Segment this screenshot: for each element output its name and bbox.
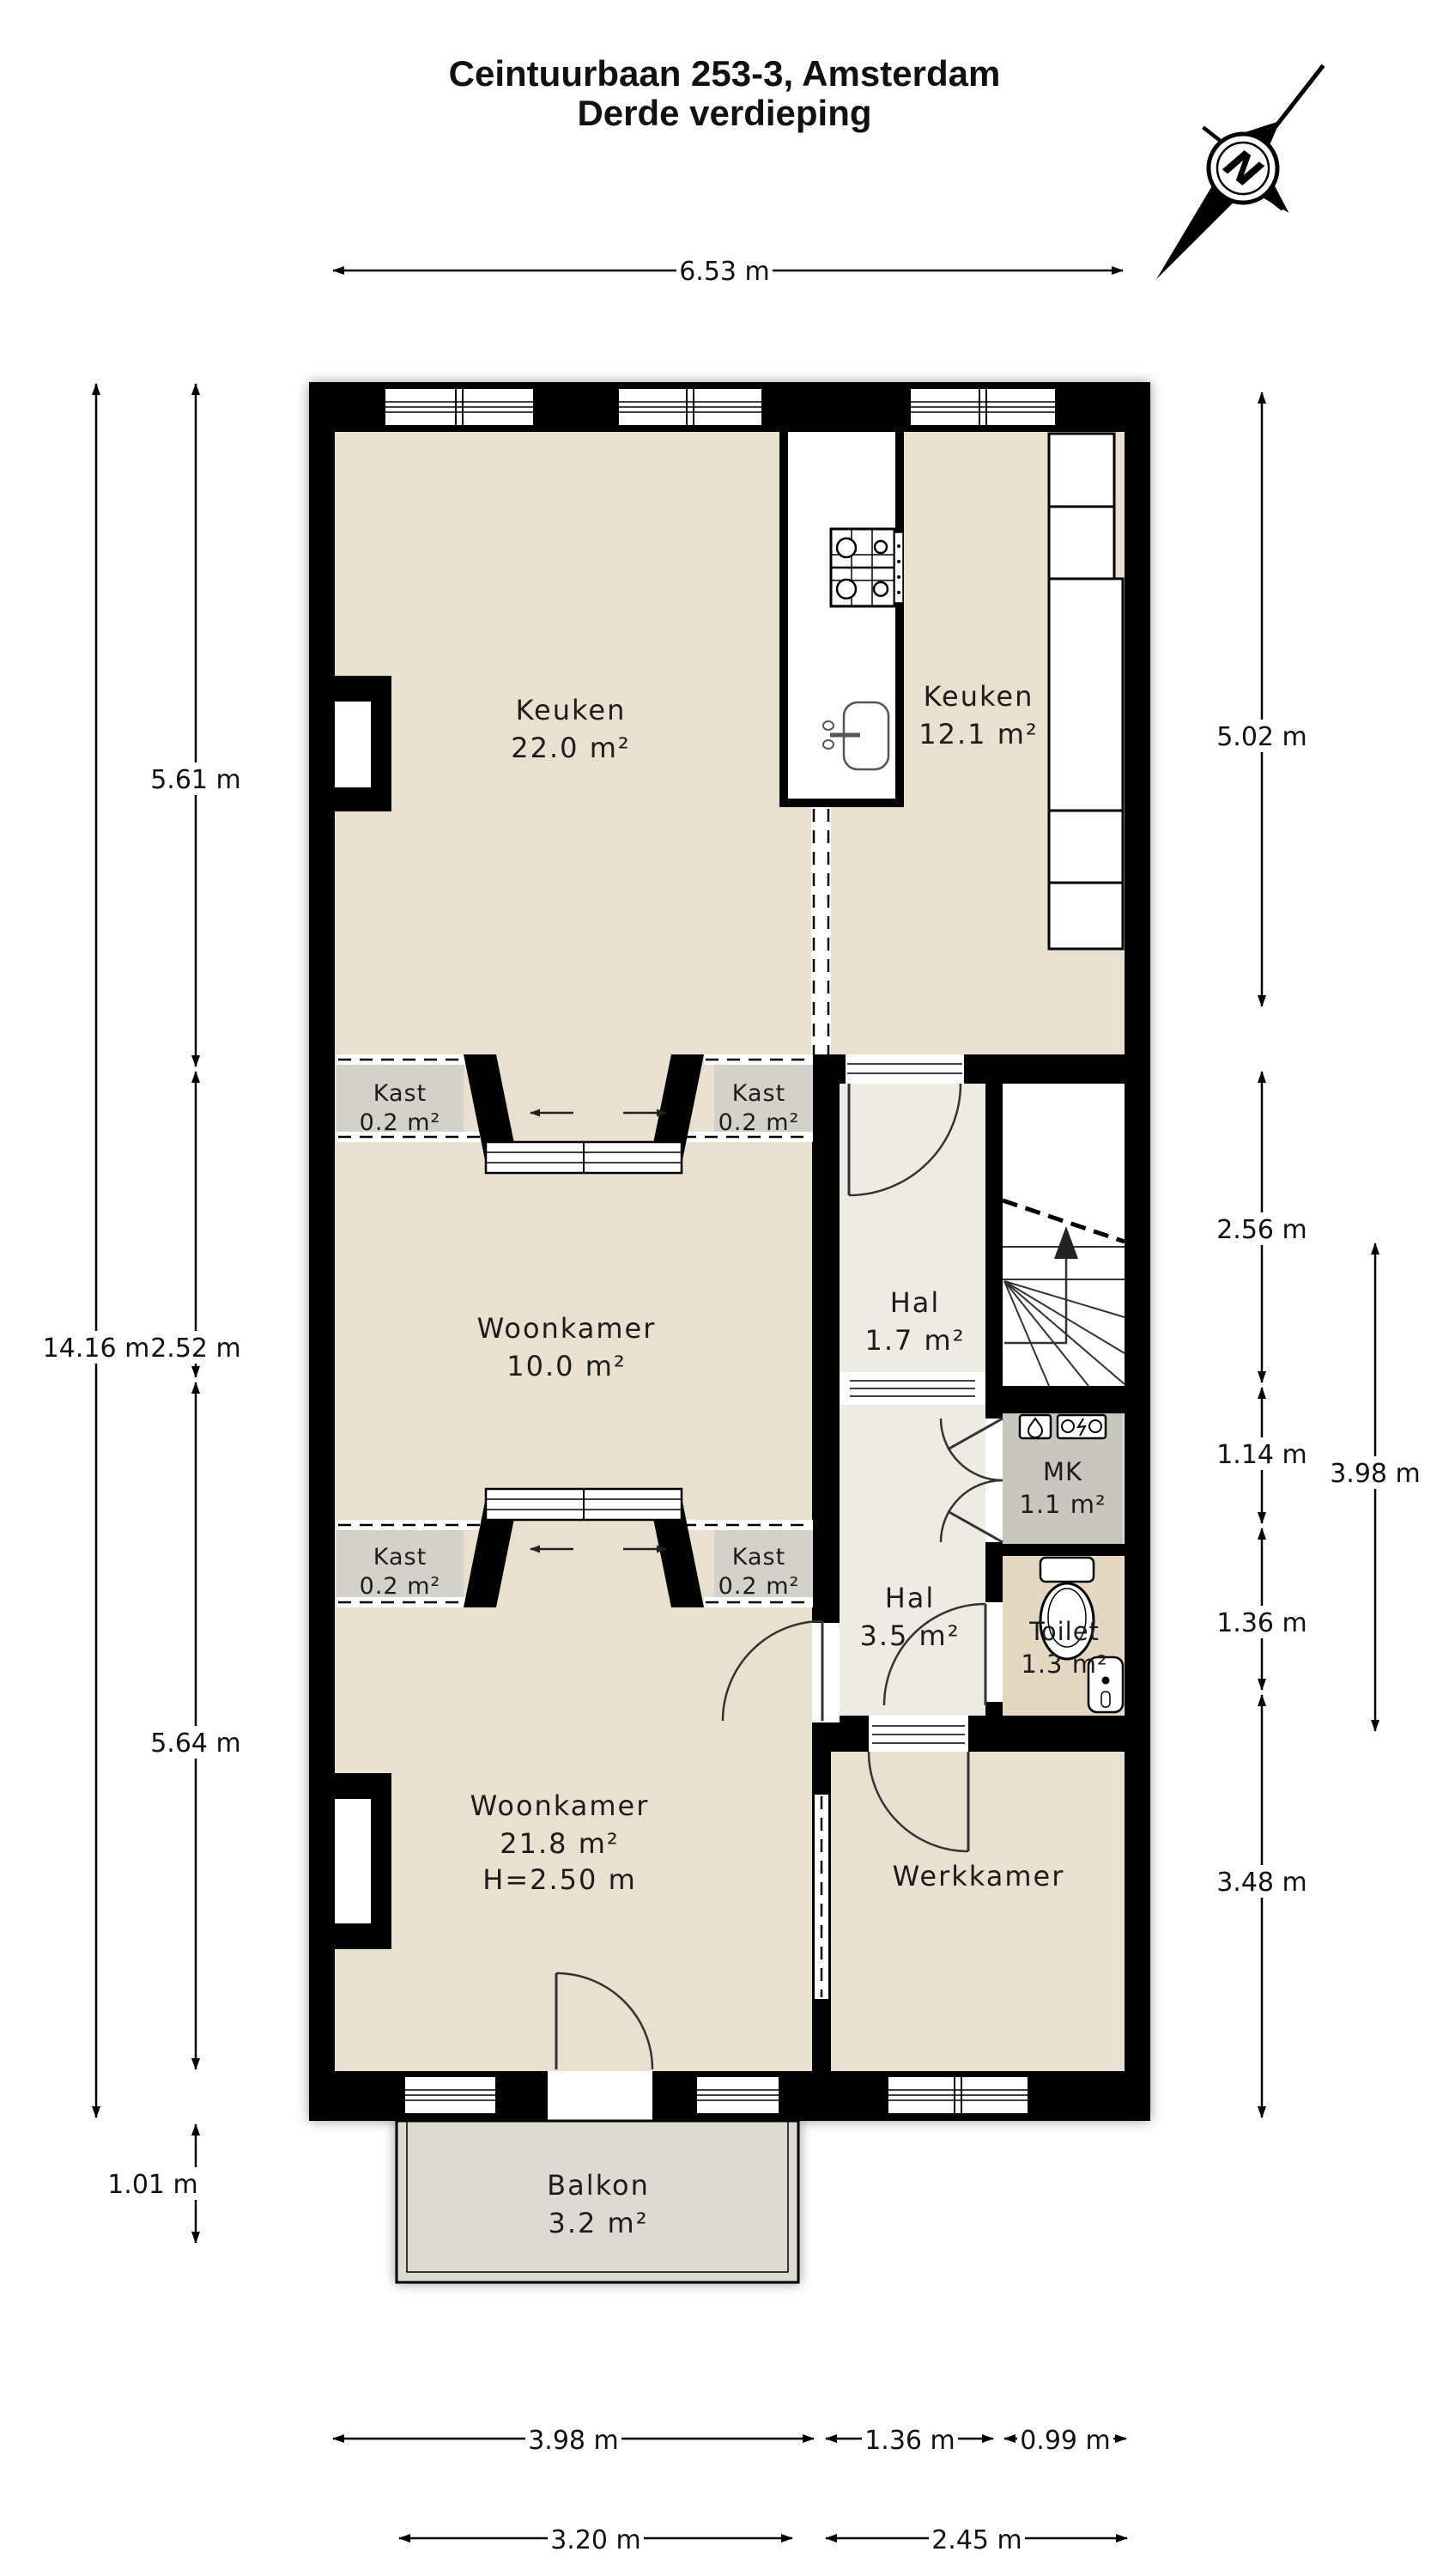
window xyxy=(404,2076,496,2114)
dimension-label: 5.61 m xyxy=(150,765,241,795)
room-area: 0.2 m² xyxy=(360,1109,441,1136)
room-area: 10.0 m² xyxy=(506,1350,626,1382)
toilet-tank xyxy=(1040,1558,1094,1582)
chimney-niche-keuken xyxy=(335,676,391,811)
dim-right-binnen-totaal: 3.98 m xyxy=(1327,1243,1423,1731)
cabinet-tall xyxy=(1049,579,1123,811)
dim-right-trap: 2.56 m xyxy=(1214,1072,1310,1382)
room-label: Kast xyxy=(732,1080,785,1107)
meter-dial xyxy=(1062,1420,1074,1432)
dim-top-width: 6.53 m xyxy=(333,254,1123,287)
dimension-label: 2.56 m xyxy=(1216,1215,1307,1245)
dim-bottom-rechts: 0.99 m xyxy=(1004,2423,1126,2456)
balkon: Balkon 3.2 m² xyxy=(397,2121,798,2282)
sink-tap-handle xyxy=(823,721,834,730)
dim-left-total: 14.16 m xyxy=(39,384,153,2117)
cabinet xyxy=(1049,507,1114,579)
dim-bottom-werkkamer: 2.45 m xyxy=(826,2523,1127,2555)
dimension-label: 2.52 m xyxy=(150,1334,241,1364)
room-label: Woonkamer xyxy=(477,1312,657,1345)
dimension-label: 14.16 m xyxy=(43,1334,150,1364)
dimension-label: 1.01 m xyxy=(107,2170,198,2200)
niche-recess xyxy=(335,702,371,787)
window xyxy=(888,2076,1028,2114)
window xyxy=(385,388,534,426)
meter-icons xyxy=(1020,1415,1106,1438)
dim-left-keuken: 5.61 m xyxy=(148,384,244,1066)
dimension-label: 1.14 m xyxy=(1216,1440,1307,1470)
door-opening xyxy=(846,1054,964,1084)
room-label: Woonkamer xyxy=(470,1789,650,1822)
dimension-label: 2.45 m xyxy=(931,2525,1022,2555)
window xyxy=(910,388,1056,426)
kitchen-cabinets xyxy=(1049,434,1123,949)
dimension-label: 5.02 m xyxy=(1216,722,1307,752)
glass-partition xyxy=(815,1795,828,1999)
floorplan-page: Ceintuurbaan 253-3, Amsterdam Derde verd… xyxy=(0,0,1449,2576)
stove-burner xyxy=(837,538,856,557)
dim-right-werkkamer: 3.48 m xyxy=(1214,1695,1310,2117)
window xyxy=(696,2076,779,2114)
door-opening xyxy=(869,1716,968,1752)
room-area: 0.2 m² xyxy=(718,1573,800,1600)
passage-strip xyxy=(811,807,831,1054)
dim-right-keuken: 5.02 m xyxy=(1214,392,1310,1006)
dim-left-balkon: 1.01 m xyxy=(103,2124,203,2243)
balkon-floor xyxy=(397,2121,798,2282)
room-area: 12.1 m² xyxy=(919,718,1038,750)
stove-knob xyxy=(897,560,900,563)
cabinet xyxy=(1049,811,1123,883)
room-area: 22.0 m² xyxy=(511,732,630,764)
sliding-door-track xyxy=(486,1142,682,1173)
wall-right xyxy=(1125,382,1150,2121)
door-opening xyxy=(812,1623,840,1722)
meter-dial xyxy=(1089,1420,1101,1432)
dimension-label: 3.48 m xyxy=(1216,1868,1307,1898)
stove-knob xyxy=(897,575,900,579)
dimension-label: 3.20 m xyxy=(550,2525,641,2555)
hal-onder-floor xyxy=(840,1405,985,1716)
wall-trap-onder xyxy=(1003,1386,1125,1413)
stove-knob xyxy=(897,591,900,594)
title-line-1: Ceintuurbaan 253-3, Amsterdam xyxy=(449,53,1001,94)
room-area: 1.1 m² xyxy=(1019,1490,1106,1519)
room-area: 1.3 m² xyxy=(1021,1649,1107,1679)
room-label: Keuken xyxy=(516,694,627,726)
room-area: 0.2 m² xyxy=(360,1573,441,1600)
room-label: Hal xyxy=(885,1582,936,1614)
washbasin-tap xyxy=(1101,1692,1110,1707)
windows-top xyxy=(385,388,1056,426)
room-ceiling-height: H=2.50 m xyxy=(482,1863,636,1896)
dim-left-woonkamer-midden: 2.52 m xyxy=(148,1072,244,1377)
window xyxy=(618,388,762,426)
dim-bottom-balkon: 3.20 m xyxy=(399,2523,792,2555)
dim-bottom-woonkamer: 3.98 m xyxy=(333,2423,814,2456)
stove-burner xyxy=(874,582,888,596)
cabinet xyxy=(1049,883,1123,949)
chimney-niche-woonkamer xyxy=(335,1773,391,1949)
page-title: Ceintuurbaan 253-3, Amsterdam Derde verd… xyxy=(449,53,1001,133)
threshold-hal-hal xyxy=(840,1372,985,1405)
dim-right-toilet: 1.36 m xyxy=(1214,1528,1310,1690)
compass-icon: N xyxy=(1112,31,1373,319)
stove-icon xyxy=(831,529,903,606)
door-opening xyxy=(548,2071,652,2121)
floorplan: Balkon 3.2 m² Keuken 22.0 m² Keuken 12.1… xyxy=(309,382,1150,2282)
room-area: 3.5 m² xyxy=(859,1619,960,1652)
room-label: Kast xyxy=(373,1080,427,1107)
room-label: Werkkamer xyxy=(893,1860,1065,1893)
dim-left-woonkamer-groot: 5.64 m xyxy=(148,1382,244,2069)
room-label: Kast xyxy=(373,1544,427,1571)
dim-bottom-hal: 1.36 m xyxy=(826,2423,993,2456)
stove-knob xyxy=(897,544,900,548)
dimension-label: 6.53 m xyxy=(679,257,770,287)
werkkamer-floor xyxy=(831,1752,1125,2071)
dimension-label: 5.64 m xyxy=(150,1728,241,1759)
dim-right-meterkast: 1.14 m xyxy=(1214,1388,1310,1523)
dimension-label: 1.36 m xyxy=(864,2426,955,2456)
sliding-door-track xyxy=(486,1489,682,1520)
room-label: Kast xyxy=(732,1544,785,1571)
dimension-label: 3.98 m xyxy=(528,2426,619,2456)
open-passage-dashed xyxy=(811,807,831,1054)
dimension-label: 0.99 m xyxy=(1020,2426,1111,2456)
room-label: Keuken xyxy=(924,680,1034,713)
stove-burner xyxy=(837,580,856,598)
niche-recess xyxy=(335,1799,371,1923)
floorplan-canvas: Ceintuurbaan 253-3, Amsterdam Derde verd… xyxy=(0,0,1449,2576)
door-opening xyxy=(985,1602,1003,1702)
sink-tap-handle xyxy=(823,740,834,749)
room-area: 0.2 m² xyxy=(718,1109,800,1136)
wall-mk-toilet xyxy=(1003,1544,1125,1556)
room-label: MK xyxy=(1043,1457,1082,1486)
room-label: Balkon xyxy=(547,2169,650,2202)
room-label: Hal xyxy=(890,1286,941,1319)
room-area: 1.7 m² xyxy=(864,1324,965,1357)
room-area: 3.2 m² xyxy=(548,2207,648,2239)
wall-left xyxy=(309,382,335,2121)
stove-burner xyxy=(875,541,887,553)
cabinet xyxy=(1049,434,1114,507)
title-line-2: Derde verdieping xyxy=(577,93,871,133)
room-label: Toilet xyxy=(1028,1617,1100,1646)
room-area: 21.8 m² xyxy=(500,1827,619,1860)
dimension-label: 1.36 m xyxy=(1216,1608,1307,1638)
dimension-label: 3.98 m xyxy=(1330,1459,1421,1489)
